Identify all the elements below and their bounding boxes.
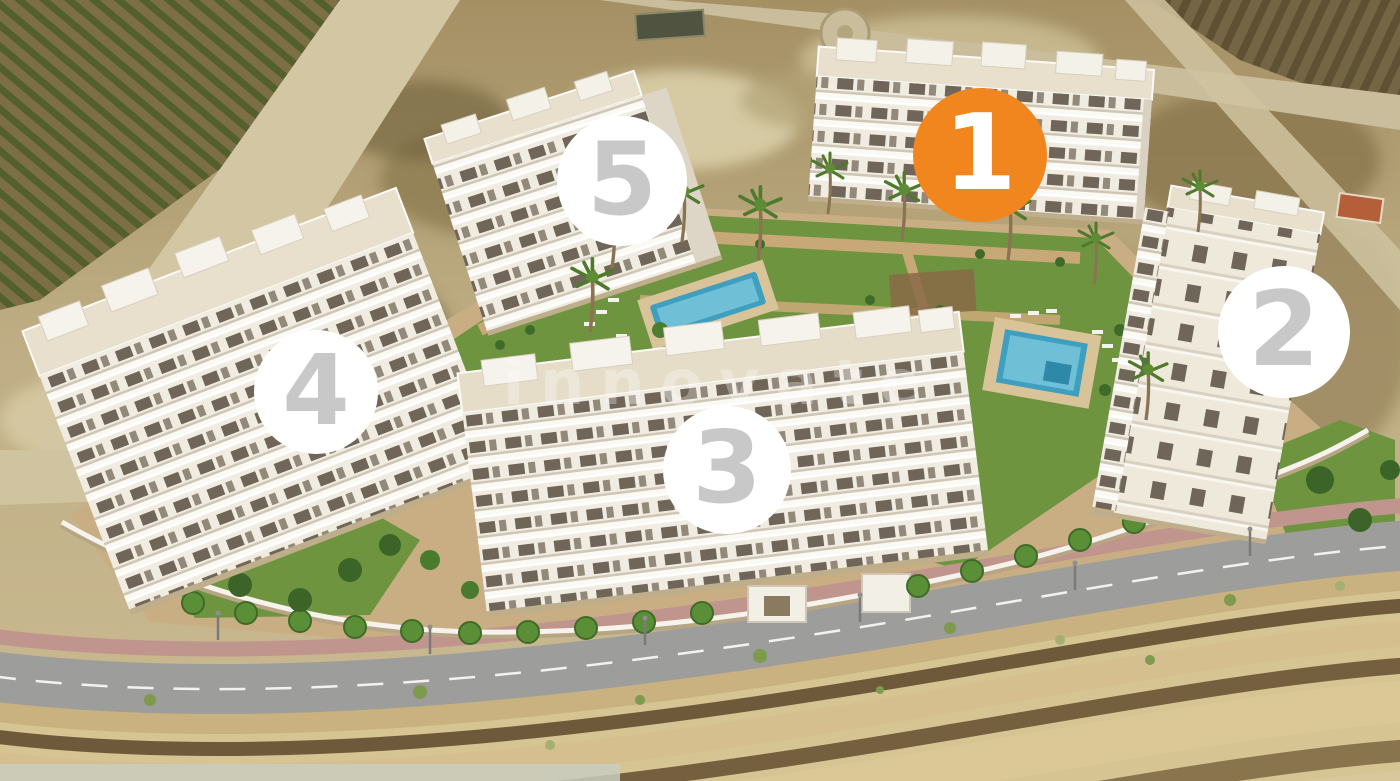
building-marker-1-number: 1 bbox=[943, 101, 1016, 206]
building-marker-3[interactable]: 3 bbox=[663, 406, 791, 534]
building-marker-5[interactable]: 5 bbox=[557, 116, 687, 246]
building-marker-3-number: 3 bbox=[692, 418, 762, 518]
building-marker-4-number: 4 bbox=[282, 342, 350, 439]
building-marker-2[interactable]: 2 bbox=[1218, 266, 1350, 398]
sports-court bbox=[635, 10, 705, 41]
building-marker-4[interactable]: 4 bbox=[254, 330, 378, 454]
red-roof-hut bbox=[1337, 193, 1384, 223]
building-marker-2-number: 2 bbox=[1248, 279, 1320, 382]
building-marker-5-number: 5 bbox=[587, 129, 657, 230]
building-marker-1[interactable]: 1 bbox=[913, 88, 1047, 222]
aerial-render-image: innovate 1 2 3 4 5 bbox=[0, 0, 1400, 781]
aerial-render-scene bbox=[0, 0, 1400, 781]
